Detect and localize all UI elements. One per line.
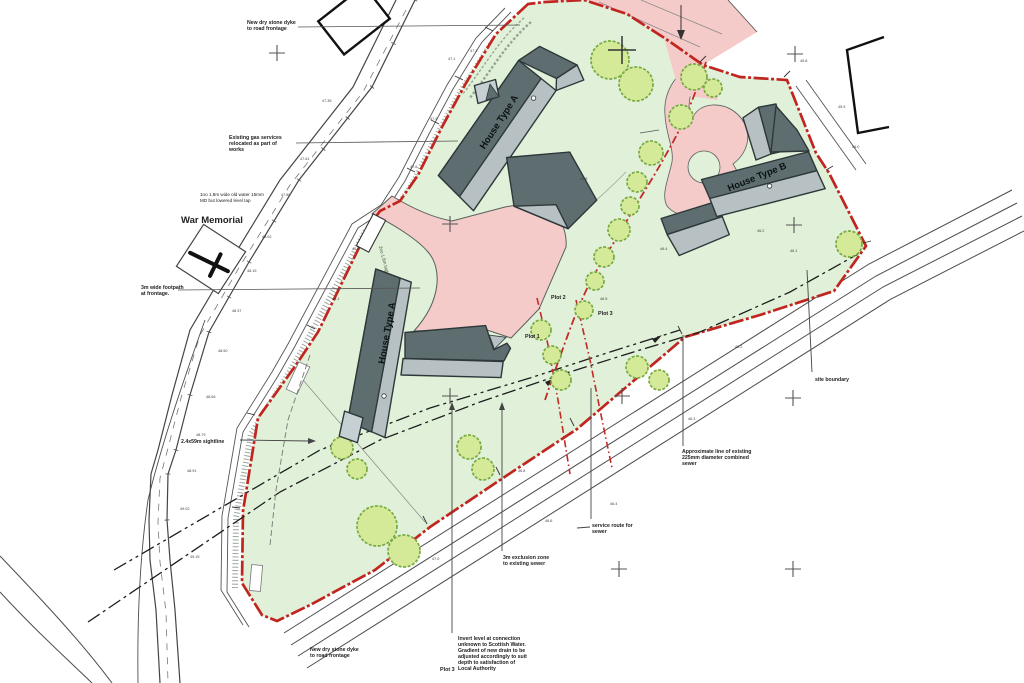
- svg-text:47.1: 47.1: [448, 57, 455, 61]
- svg-text:MD but lowered level tap: MD but lowered level tap: [200, 198, 251, 203]
- svg-text:47.6: 47.6: [410, 165, 417, 169]
- svg-text:47.61: 47.61: [300, 157, 310, 161]
- svg-text:46.4: 46.4: [610, 502, 617, 506]
- svg-text:46.9: 46.9: [580, 177, 587, 181]
- svg-text:48.1: 48.1: [332, 297, 339, 301]
- svg-text:47.9: 47.9: [352, 247, 359, 251]
- svg-text:Plot 2: Plot 2: [551, 295, 566, 301]
- svg-text:48.91: 48.91: [187, 469, 197, 473]
- svg-text:48.02: 48.02: [262, 235, 272, 239]
- svg-text:Plot 3: Plot 3: [440, 667, 455, 673]
- svg-text:to existing sewer: to existing sewer: [503, 561, 545, 567]
- svg-text:46.1: 46.1: [790, 249, 797, 253]
- svg-text:sewer: sewer: [682, 461, 697, 467]
- svg-text:War Memorial: War Memorial: [181, 215, 243, 226]
- svg-text:49.02: 49.02: [180, 507, 190, 511]
- svg-text:46.6: 46.6: [545, 519, 552, 523]
- svg-text:46.3: 46.3: [688, 417, 695, 421]
- svg-text:2.4x59m sightline: 2.4x59m sightline: [181, 439, 224, 445]
- svg-text:works: works: [228, 147, 244, 153]
- svg-text:48.66: 48.66: [206, 395, 216, 399]
- svg-text:46.2: 46.2: [757, 229, 764, 233]
- svg-text:to road frontage: to road frontage: [310, 653, 350, 659]
- svg-text:46.8: 46.8: [518, 469, 525, 473]
- svg-text:Local Authority: Local Authority: [458, 666, 496, 672]
- svg-text:45.8: 45.8: [800, 59, 807, 63]
- svg-text:at frontage.: at frontage.: [141, 291, 170, 297]
- svg-text:47.3: 47.3: [470, 49, 477, 53]
- svg-text:48.15: 48.15: [247, 269, 257, 273]
- svg-text:46.5: 46.5: [600, 297, 607, 301]
- svg-text:Plot 3: Plot 3: [598, 311, 613, 317]
- svg-text:47.4: 47.4: [430, 117, 437, 121]
- svg-text:site boundary: site boundary: [815, 377, 849, 383]
- svg-text:48.79: 48.79: [196, 433, 206, 437]
- svg-text:sewer: sewer: [592, 529, 607, 535]
- svg-text:1no 1.8m wide old water 15mm: 1no 1.8m wide old water 15mm: [200, 192, 264, 197]
- svg-text:to road frontage: to road frontage: [247, 26, 287, 32]
- svg-text:46.4: 46.4: [660, 247, 667, 251]
- svg-text:46.0: 46.0: [852, 145, 859, 149]
- svg-text:47.80: 47.80: [281, 193, 291, 197]
- svg-text:47.0: 47.0: [432, 557, 439, 561]
- svg-text:46.2: 46.2: [735, 345, 742, 349]
- svg-text:45.9: 45.9: [838, 105, 845, 109]
- svg-text:47.35: 47.35: [322, 99, 332, 103]
- svg-text:48.37: 48.37: [232, 309, 242, 313]
- svg-text:49.15: 49.15: [190, 555, 200, 559]
- svg-text:Plot 1: Plot 1: [525, 334, 540, 340]
- svg-text:48.50: 48.50: [218, 349, 228, 353]
